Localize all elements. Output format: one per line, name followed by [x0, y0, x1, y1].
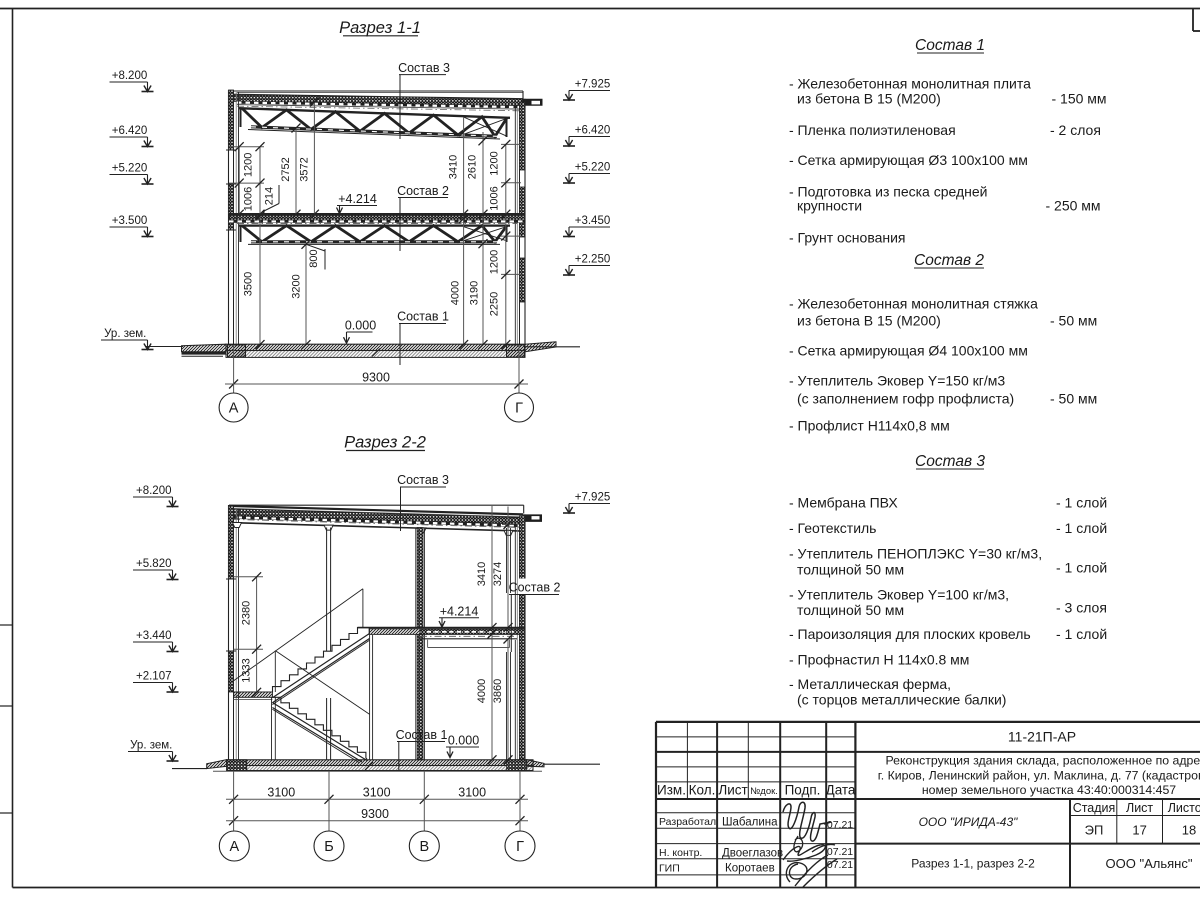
svg-text:(с торцов металлические балки): (с торцов металлические балки) — [797, 692, 1006, 708]
svg-text:- 150 мм: - 150 мм — [1052, 91, 1107, 107]
svg-text:Дата: Дата — [826, 783, 856, 798]
svg-text:17: 17 — [1132, 823, 1146, 838]
svg-text:А: А — [229, 401, 239, 417]
svg-text:Состав 1: Состав 1 — [915, 37, 985, 54]
svg-text:+2.107: +2.107 — [136, 670, 172, 682]
svg-text:Разрез 1-1, разрез 2-2: Разрез 1-1, разрез 2-2 — [911, 857, 1035, 871]
svg-text:Ур. зем.: Ур. зем. — [130, 739, 172, 751]
svg-text:Лист: Лист — [718, 783, 747, 798]
svg-text:1006: 1006 — [243, 187, 255, 211]
svg-text:- Пароизоляция для плоских кро: - Пароизоляция для плоских кровель — [789, 626, 1031, 642]
svg-text:+3.450: +3.450 — [575, 215, 611, 227]
svg-text:3100: 3100 — [458, 786, 486, 800]
svg-text:4000: 4000 — [449, 281, 461, 305]
svg-text:- 50 мм: - 50 мм — [1050, 391, 1097, 407]
svg-text:1006: 1006 — [489, 186, 501, 210]
svg-text:Состав 1: Состав 1 — [396, 728, 448, 742]
svg-text:3200: 3200 — [291, 274, 303, 298]
svg-text:Изм.: Изм. — [657, 783, 686, 798]
svg-text:- 3 слоя: - 3 слоя — [1056, 600, 1107, 616]
svg-text:+5.220: +5.220 — [112, 162, 148, 174]
svg-text:3860: 3860 — [492, 679, 504, 703]
svg-text:+7.925: +7.925 — [575, 491, 611, 503]
svg-text:Двоеглазов: Двоеглазов — [722, 848, 783, 860]
svg-text:- Утеплитель Эковер Y=100 кг/м: - Утеплитель Эковер Y=100 кг/м3, — [789, 587, 1009, 603]
svg-text:- Мембрана ПВХ: - Мембрана ПВХ — [789, 495, 898, 511]
svg-text:2380: 2380 — [241, 601, 253, 625]
svg-text:ООО "Альянс": ООО "Альянс" — [1106, 856, 1193, 871]
svg-text:- 2 слоя: - 2 слоя — [1050, 122, 1101, 138]
svg-text:- Грунт основания: - Грунт основания — [789, 230, 906, 246]
svg-text:Г: Г — [516, 839, 524, 855]
svg-text:Листов: Листов — [1168, 801, 1200, 815]
svg-text:+6.420: +6.420 — [575, 124, 611, 136]
svg-text:07.21: 07.21 — [827, 859, 853, 871]
svg-text:+4.214: +4.214 — [338, 192, 377, 206]
svg-text:ООО "ИРИДА-43": ООО "ИРИДА-43" — [919, 815, 1019, 829]
svg-text:0.000: 0.000 — [345, 319, 376, 333]
svg-text:- 1 слой: - 1 слой — [1056, 560, 1107, 576]
svg-text:ЭП: ЭП — [1085, 823, 1104, 838]
svg-text:А: А — [229, 839, 239, 855]
svg-text:г. Киров, Ленинский район, ул.: г. Киров, Ленинский район, ул. Маклина, … — [878, 768, 1200, 782]
svg-text:- Сетка армирующая Ø3 100х100: - Сетка армирующая Ø3 100х100 мм — [789, 152, 1028, 168]
svg-text:- Утеплитель ПЕНОПЛЭКС Y=30 кг: - Утеплитель ПЕНОПЛЭКС Y=30 кг/м3, — [789, 546, 1042, 562]
svg-text:3100: 3100 — [363, 786, 391, 800]
svg-text:+5.820: +5.820 — [136, 558, 172, 570]
svg-text:3410: 3410 — [448, 155, 460, 179]
svg-text:+4.214: +4.214 — [440, 605, 479, 619]
svg-text:3500: 3500 — [243, 272, 255, 296]
svg-text:крупности: крупности — [797, 198, 862, 214]
svg-text:3100: 3100 — [267, 786, 295, 800]
svg-text:9300: 9300 — [361, 807, 389, 821]
svg-text:11-21П-АР: 11-21П-АР — [1008, 729, 1076, 745]
svg-text:- 1 слой: - 1 слой — [1056, 520, 1107, 536]
svg-text:+2.250: +2.250 — [575, 253, 611, 265]
svg-text:Разработал: Разработал — [659, 816, 716, 828]
svg-text:3274: 3274 — [492, 562, 504, 586]
svg-text:из бетона В 15 (М200): из бетона В 15 (М200) — [797, 313, 941, 329]
svg-text:- Геотекстиль: - Геотекстиль — [789, 520, 876, 536]
svg-text:(с заполнением гофр профлиста): (с заполнением гофр профлиста) — [797, 391, 1014, 407]
svg-text:Разрез 2-2: Разрез 2-2 — [344, 434, 426, 452]
svg-text:+3.440: +3.440 — [136, 630, 172, 642]
svg-text:толщиной 50 мм: толщиной 50 мм — [797, 602, 904, 618]
svg-text:Состав 1: Состав 1 — [397, 310, 449, 324]
svg-text:- Профлист Н114х0,8 мм: - Профлист Н114х0,8 мм — [789, 418, 950, 434]
svg-text:07.21: 07.21 — [827, 846, 853, 858]
svg-text:2752: 2752 — [280, 157, 292, 181]
svg-text:из бетона В 15 (М200): из бетона В 15 (М200) — [797, 91, 941, 107]
svg-text:- Утеплитель Эковер Y=150 кг/м: - Утеплитель Эковер Y=150 кг/м3 — [789, 373, 1005, 389]
svg-text:800: 800 — [308, 249, 320, 267]
svg-text:+6.420: +6.420 — [112, 125, 148, 137]
svg-text:Подп.: Подп. — [785, 783, 821, 798]
svg-text:Кол.: Кол. — [689, 783, 716, 798]
svg-text:- Пленка полиэтиленовая: - Пленка полиэтиленовая — [789, 122, 956, 138]
svg-text:В: В — [419, 839, 429, 855]
svg-text:- 250 мм: - 250 мм — [1046, 198, 1101, 214]
svg-text:0.000: 0.000 — [448, 734, 479, 748]
svg-text:+8.200: +8.200 — [136, 485, 172, 497]
svg-text:номер земельного участка 43:40: номер земельного участка 43:40:000314:45… — [922, 783, 1176, 797]
svg-text:толщиной 50 мм: толщиной 50 мм — [797, 562, 904, 578]
svg-text:1200: 1200 — [243, 153, 255, 177]
svg-text:ГИП: ГИП — [659, 863, 680, 875]
svg-text:+5.220: +5.220 — [575, 161, 611, 173]
svg-text:Реконструкция здания склада, р: Реконструкция здания склада, расположенн… — [885, 754, 1200, 768]
svg-text:Лист: Лист — [1126, 801, 1153, 815]
svg-text:Стадия: Стадия — [1073, 801, 1116, 815]
svg-text:1333: 1333 — [241, 658, 253, 682]
svg-text:- Железобетонная монолитная с: - Железобетонная монолитная стяжка — [789, 296, 1038, 312]
svg-text:- Металлическая ферма,: - Металлическая ферма, — [789, 676, 951, 692]
svg-text:Н. контр.: Н. контр. — [659, 847, 702, 859]
svg-text:4000: 4000 — [476, 679, 488, 703]
svg-text:2610: 2610 — [467, 155, 479, 179]
svg-text:Состав 3: Состав 3 — [398, 61, 450, 75]
svg-text:Разрез 1-1: Разрез 1-1 — [339, 19, 421, 37]
svg-text:- 1 слой: - 1 слой — [1056, 626, 1107, 642]
svg-text:- 50 мм: - 50 мм — [1050, 313, 1097, 329]
svg-text:Шабалина: Шабалина — [722, 817, 778, 829]
svg-text:Состав 2: Состав 2 — [509, 581, 561, 595]
svg-text:1200: 1200 — [489, 151, 501, 175]
svg-text:№док.: №док. — [750, 786, 778, 797]
svg-text:Состав 2: Состав 2 — [914, 252, 984, 269]
svg-text:18: 18 — [1182, 823, 1196, 838]
svg-text:- Железобетонная монолитная п: - Железобетонная монолитная плита — [789, 76, 1031, 92]
svg-text:Состав 2: Состав 2 — [397, 184, 449, 198]
svg-text:- Сетка армирующая Ø4 100х100: - Сетка армирующая Ø4 100х100 мм — [789, 343, 1028, 359]
svg-text:214: 214 — [264, 187, 276, 205]
svg-text:Коротаев: Коротаев — [725, 863, 775, 875]
svg-text:- 1 слой: - 1 слой — [1056, 495, 1107, 511]
svg-text:3572: 3572 — [299, 157, 311, 181]
svg-text:- Профнастил Н 114х0.8 мм: - Профнастил Н 114х0.8 мм — [789, 652, 969, 668]
svg-text:Г: Г — [515, 401, 523, 417]
svg-text:Ур. зем.: Ур. зем. — [104, 328, 146, 340]
svg-text:Состав 3: Состав 3 — [397, 473, 449, 487]
svg-text:3410: 3410 — [476, 562, 488, 586]
svg-text:+3.500: +3.500 — [112, 215, 148, 227]
svg-text:+8.200: +8.200 — [112, 70, 148, 82]
svg-text:2250: 2250 — [489, 292, 501, 316]
svg-text:+7.925: +7.925 — [575, 78, 611, 90]
svg-text:Б: Б — [324, 839, 334, 855]
svg-text:Состав 3: Состав 3 — [915, 453, 985, 470]
svg-text:07.21: 07.21 — [827, 819, 853, 831]
svg-text:3190: 3190 — [469, 281, 481, 305]
svg-text:1200: 1200 — [489, 250, 501, 274]
svg-text:9300: 9300 — [362, 371, 390, 385]
